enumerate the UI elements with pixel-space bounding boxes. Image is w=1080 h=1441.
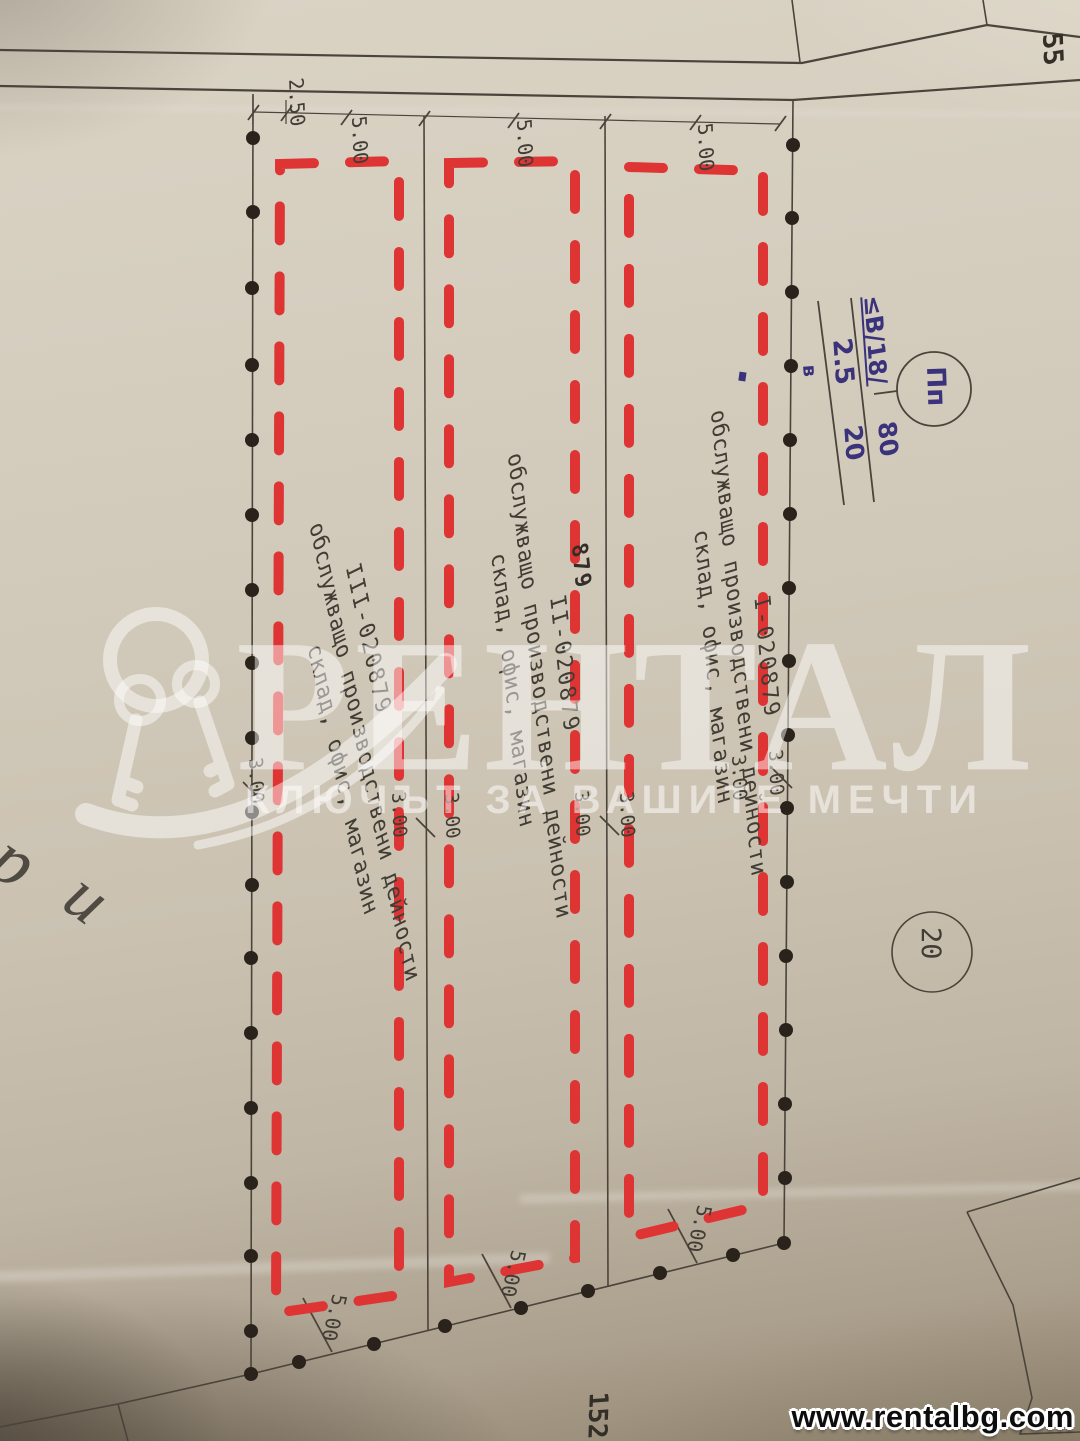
dim-5m-label: 5.00 [347, 114, 373, 166]
dim-offset-label: 2.50 [284, 76, 310, 128]
scanned-site-plan-photo: 2.50 5.00 5.00 5.00 3.00 3.00 3.00 3.00 … [0, 0, 1080, 1441]
road-edges [0, 0, 1080, 100]
website-url: www.rentalbg.com [792, 1399, 1074, 1435]
neighbour-parcel-outline [967, 1178, 1080, 1434]
point-20-label: 20 [915, 927, 946, 960]
watermark-tagline: КЛЮЧЪТ ЗА ВАШИТЕ МЕЧТИ [245, 778, 984, 823]
dim-5m-label: 5.00 [693, 121, 719, 173]
dim-5m-label: 5.00 [512, 117, 538, 169]
neighbour-parcel-55: 55 [1036, 30, 1068, 68]
zoning-letter: в [798, 364, 821, 378]
zoning-zone-code: Пп [920, 366, 951, 407]
neighbour-parcel-152: 152 [581, 1391, 613, 1440]
zoning-greenery: 20 [838, 423, 869, 463]
zoning-density: 80 [872, 419, 903, 459]
zoning-kint: 2.5 [826, 336, 859, 387]
